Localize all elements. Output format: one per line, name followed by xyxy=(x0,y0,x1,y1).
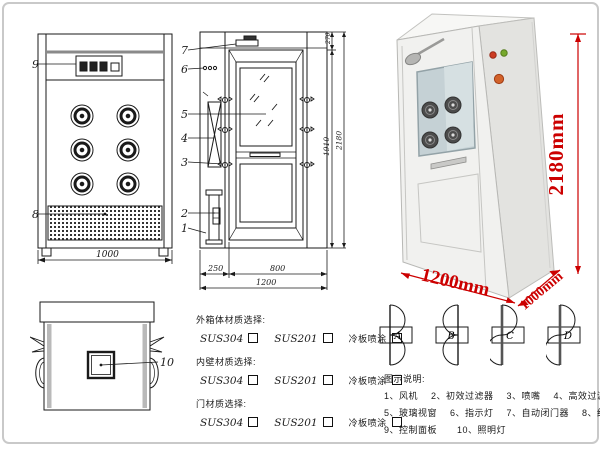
glass-lower xyxy=(240,164,292,222)
callout-8: 8 xyxy=(32,208,39,221)
indicator-green xyxy=(501,50,507,56)
legend-line: 1、风机 2、初效过滤器 3、喷嘴 4、高效过滤器 xyxy=(384,389,596,402)
door-config-a: A xyxy=(378,303,414,367)
legend-line: 9、控制面板 10、照明灯 xyxy=(384,423,596,436)
dim-label-270: 270 xyxy=(325,32,332,45)
top-view-drawing: 10 xyxy=(30,296,182,424)
dim-label-1910: 1910 xyxy=(322,137,331,156)
dim-2180mm: 2180mm xyxy=(544,113,568,196)
door-config-label-c: C xyxy=(506,331,514,342)
door-config-label-a: A xyxy=(393,331,401,342)
callout-5: 5 xyxy=(181,108,188,121)
door-handle xyxy=(250,153,280,157)
product-photo: 2180mm 1200mm 1000mm xyxy=(382,6,598,312)
dim-label-1200: 1200 xyxy=(256,278,276,287)
dim-label-800: 800 xyxy=(270,264,285,273)
checkbox-inner-sus304[interactable] xyxy=(248,375,258,385)
material-option-label: SUS201 xyxy=(274,417,317,429)
front-view-drawing: 9 8 1000 xyxy=(30,26,180,270)
material-option-label: SUS201 xyxy=(274,333,317,345)
material-options-row: SUS304 SUS201 冷板喷涂 xyxy=(200,329,376,347)
checkbox-outer-sus201[interactable] xyxy=(323,333,333,343)
legend-item: 7、自动闭门器 xyxy=(507,406,570,419)
side-nozzles xyxy=(218,97,314,168)
door xyxy=(229,50,303,240)
dim-label-250: 250 xyxy=(207,264,223,273)
checkbox-door-sus304[interactable] xyxy=(248,417,258,427)
door-config-icons: A B C D xyxy=(378,303,582,367)
door-closer xyxy=(236,36,258,46)
callout-4: 4 xyxy=(180,132,188,145)
callout-6: 6 xyxy=(181,63,188,76)
dim-label-1000: 1000 xyxy=(96,250,119,260)
material-option-label: 冷板喷涂 xyxy=(349,376,387,386)
nozzles xyxy=(71,105,139,195)
legend-item: 2、初效过滤器 xyxy=(431,389,494,402)
air-shower-spec-sheet: 9 8 1000 xyxy=(0,0,600,450)
legend-item: 4、高效过滤器 xyxy=(554,389,600,402)
door-config-c: C xyxy=(490,303,526,367)
legend-item: 9、控制面板 xyxy=(384,423,437,436)
material-selection: 外箱体材质选择: SUS304 SUS201 冷板喷涂 内壁材质选择: SUS3… xyxy=(196,313,376,439)
side-view-drawing: 7 6 5 4 3 2 1 250 800 1200 270 1910 2180 xyxy=(178,22,350,300)
legend-item: 5、玻璃视窗 xyxy=(384,406,437,419)
callout-1: 1 xyxy=(181,222,188,235)
legend-line: 5、玻璃视窗 6、指示灯 7、自动闭门器 8、红外线感应器 xyxy=(384,406,596,419)
door-config-d: D xyxy=(546,303,582,367)
material-option-label: 冷板喷涂 xyxy=(349,418,387,428)
legend-title: 图示说明: xyxy=(384,372,596,385)
door-config-label-b: B xyxy=(446,331,454,342)
glass-hatch xyxy=(250,74,277,126)
material-option-label: SUS304 xyxy=(200,417,243,429)
legend-item: 10、照明灯 xyxy=(457,423,506,436)
checkbox-outer-sus304[interactable] xyxy=(248,333,258,343)
callout-3: 3 xyxy=(181,156,188,169)
return-air-grille xyxy=(48,206,162,240)
dim-label-2180: 2180 xyxy=(335,131,344,151)
indicator-lights xyxy=(203,66,216,69)
material-group-title: 门材质选择: xyxy=(196,397,376,410)
material-group-title: 外箱体材质选择: xyxy=(196,313,376,326)
filter-column xyxy=(206,190,222,244)
material-options-row: SUS304 SUS201 冷板喷涂 xyxy=(200,371,376,389)
material-option-label: SUS304 xyxy=(200,375,243,387)
indicator-red xyxy=(490,52,496,58)
callout-7: 7 xyxy=(181,44,188,57)
door-config-label-d: D xyxy=(563,331,572,342)
callout-2: 2 xyxy=(180,207,188,220)
material-group-title: 内壁材质选择: xyxy=(196,355,376,368)
material-options-row: SUS304 SUS201 冷板喷涂 xyxy=(200,413,376,431)
door-config-b: B xyxy=(434,303,470,367)
callout-9: 9 xyxy=(32,58,39,71)
legend-item: 6、指示灯 xyxy=(450,406,494,419)
callout-10: 10 xyxy=(160,356,174,369)
door-window xyxy=(417,62,475,156)
checkbox-inner-sus201[interactable] xyxy=(323,375,333,385)
checkbox-door-sus201[interactable] xyxy=(323,417,333,427)
legend: 图示说明: 1、风机 2、初效过滤器 3、喷嘴 4、高效过滤器 5、玻璃视窗 6… xyxy=(384,372,596,436)
legend-item: 1、风机 xyxy=(384,389,418,402)
material-option-label: SUS201 xyxy=(274,375,317,387)
material-option-label: SUS304 xyxy=(200,333,243,345)
emergency-button[interactable] xyxy=(494,74,503,83)
legend-item: 3、喷嘴 xyxy=(507,389,541,402)
legend-item: 8、红外线感应器 xyxy=(582,406,600,419)
control-panel xyxy=(76,56,122,76)
